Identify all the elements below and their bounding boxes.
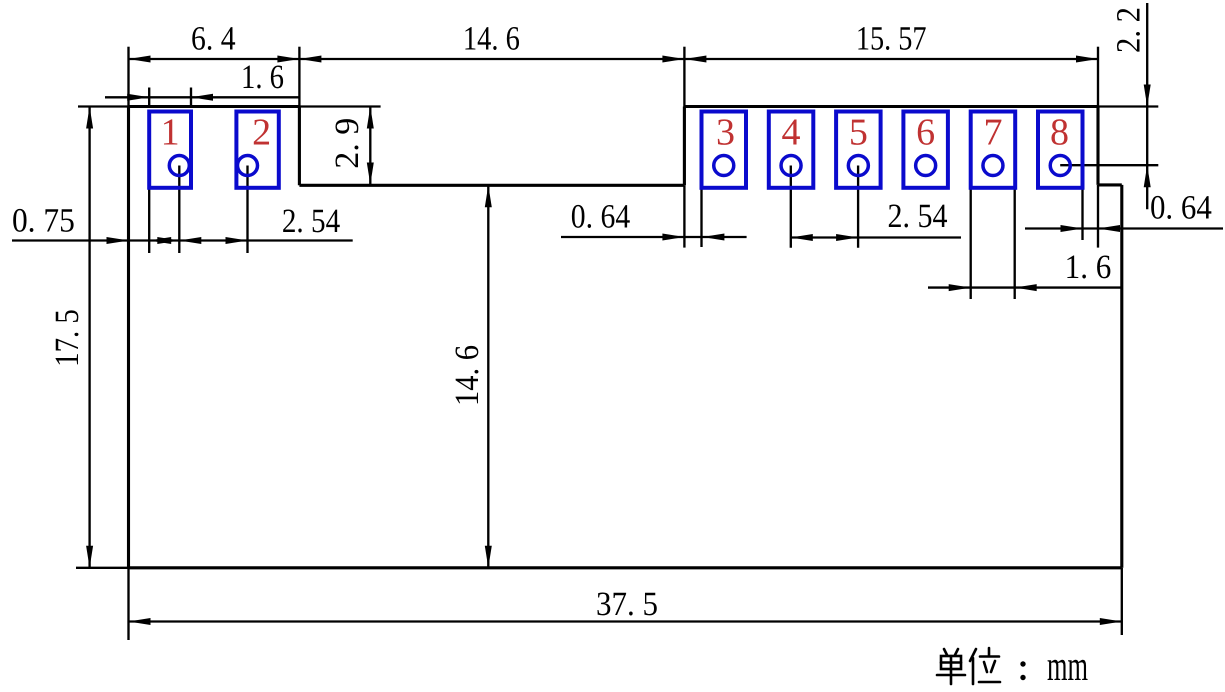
svg-text:14. 6: 14. 6 (449, 345, 486, 406)
svg-text:17. 5: 17. 5 (49, 309, 86, 367)
svg-text:1: 1 (161, 112, 180, 154)
svg-text:0. 64: 0. 64 (1150, 190, 1212, 227)
svg-text:2: 2 (252, 112, 271, 154)
svg-text:4: 4 (782, 112, 801, 154)
svg-text:2. 54: 2. 54 (888, 198, 948, 235)
svg-text:6. 4: 6. 4 (191, 21, 236, 58)
svg-text:5: 5 (849, 112, 868, 154)
svg-text:7: 7 (983, 112, 1002, 154)
svg-text:0. 75: 0. 75 (12, 202, 75, 239)
svg-text:0. 64: 0. 64 (571, 199, 630, 236)
svg-text:2. 9: 2. 9 (329, 118, 366, 169)
svg-text:14. 6: 14. 6 (463, 21, 520, 58)
svg-text:mm: mm (1047, 643, 1088, 690)
svg-text:8: 8 (1050, 112, 1069, 154)
svg-text:15. 57: 15. 57 (856, 20, 927, 57)
svg-text:6: 6 (916, 112, 935, 154)
svg-text:1. 6: 1. 6 (1065, 249, 1112, 286)
svg-text:2. 54: 2. 54 (282, 203, 340, 240)
svg-text:1. 6: 1. 6 (241, 59, 284, 96)
svg-text:2. 2: 2. 2 (1111, 7, 1148, 53)
svg-text:37. 5: 37. 5 (596, 586, 658, 623)
svg-text:3: 3 (716, 112, 735, 154)
